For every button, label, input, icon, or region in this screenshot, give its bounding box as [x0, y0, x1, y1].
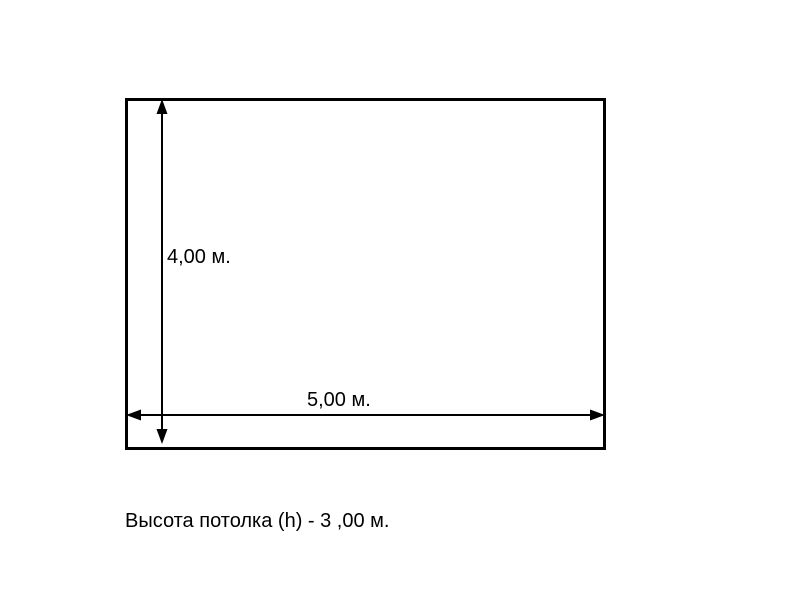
height-dimension-label: 4,00 м. — [167, 246, 231, 269]
diagram-canvas: 4,00 м. 5,00 м. Высота потолка (h) - 3 ,… — [0, 0, 800, 600]
width-dimension-label: 5,00 м. — [307, 389, 371, 412]
ceiling-height-caption: Высота потолка (h) - 3 ,00 м. — [125, 510, 389, 533]
